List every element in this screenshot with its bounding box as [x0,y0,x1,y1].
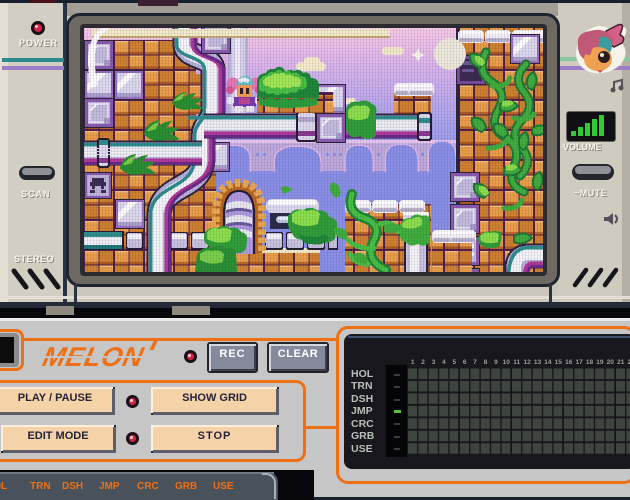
svg-text:HOL: HOL [351,368,374,380]
svg-text:10: 10 [503,359,511,366]
svg-text:1: 1 [411,359,415,366]
svg-text:DSH: DSH [351,393,373,405]
svg-text:4: 4 [442,359,446,366]
svg-text:21: 21 [617,359,625,366]
svg-text:12: 12 [523,359,531,366]
svg-text:13: 13 [534,359,542,366]
svg-text:2: 2 [421,359,425,366]
svg-text:TRN: TRN [351,380,373,392]
svg-text:5: 5 [452,359,456,366]
svg-text:11: 11 [513,359,520,366]
svg-text:JMP: JMP [351,405,373,417]
svg-text:CRC: CRC [351,418,374,430]
svg-text:16: 16 [565,359,573,366]
svg-text:6: 6 [463,359,467,366]
svg-text:3: 3 [432,359,436,366]
svg-text:GRB: GRB [351,430,375,442]
svg-text:14: 14 [544,359,552,366]
svg-text:8: 8 [484,359,488,366]
svg-text:7: 7 [473,359,477,366]
svg-text:19: 19 [596,359,604,366]
svg-text:9: 9 [494,359,498,366]
svg-text:18: 18 [586,359,594,366]
svg-text:20: 20 [607,359,615,366]
svg-text:USE: USE [351,443,373,455]
svg-text:15: 15 [555,359,563,366]
svg-text:17: 17 [575,359,583,366]
